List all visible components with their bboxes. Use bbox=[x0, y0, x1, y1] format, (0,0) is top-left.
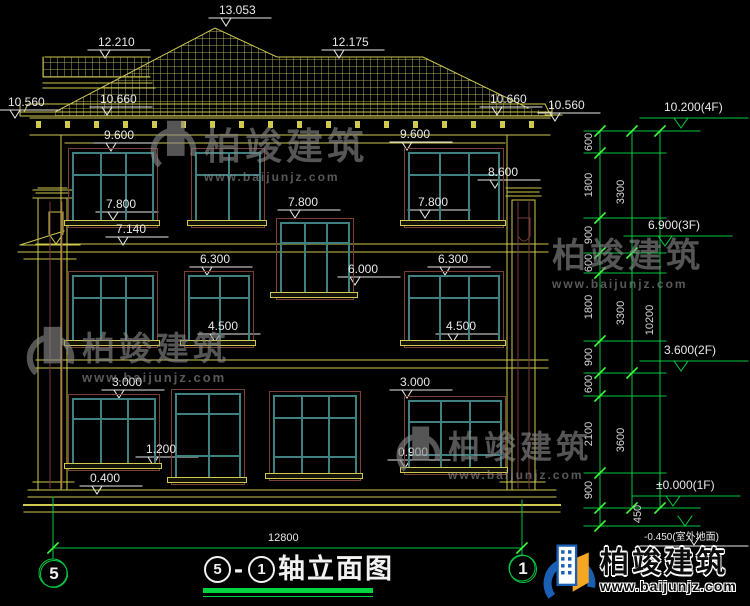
window-sill bbox=[400, 220, 506, 226]
elev-label-ridge: 13.053 bbox=[219, 4, 256, 17]
window bbox=[408, 400, 502, 471]
elev-label: 12.210 bbox=[98, 36, 135, 49]
dim-segment: 1800 bbox=[583, 295, 595, 319]
dim-segment: 2100 bbox=[583, 422, 595, 446]
window-tall bbox=[273, 395, 357, 477]
window-tall bbox=[175, 393, 241, 481]
elev-label: 10.660 bbox=[100, 93, 137, 106]
elev-label: 6.300 bbox=[438, 253, 468, 266]
title-underline-thick bbox=[203, 588, 373, 593]
drawing-title: 5 - 1 轴立面图 bbox=[204, 555, 394, 583]
elev-label: 7.140 bbox=[116, 223, 146, 236]
window-sill bbox=[265, 473, 363, 479]
dim-overall-height: 10200 bbox=[644, 305, 656, 336]
elev-label: 3.000 bbox=[112, 376, 142, 389]
floor-level-4f: 10.200(4F) bbox=[664, 101, 723, 114]
window-sill bbox=[187, 220, 267, 226]
dim-storey: 3300 bbox=[615, 180, 627, 204]
elev-label: 9.600 bbox=[104, 129, 134, 142]
elev-label: 9.600 bbox=[400, 128, 430, 141]
elevation-drawing-canvas: 13.053 12.210 12.175 10.560 10.660 10.66… bbox=[0, 0, 750, 606]
elev-label: 7.800 bbox=[106, 198, 136, 211]
elev-label: 7.800 bbox=[288, 196, 318, 209]
dim-segment: 600 bbox=[583, 254, 595, 272]
window bbox=[72, 398, 156, 467]
elev-label: 6.000 bbox=[348, 263, 378, 276]
title-underline-thin bbox=[203, 596, 373, 597]
dim-below-zero: 450 bbox=[632, 505, 644, 523]
axis-bubble-1: 1 bbox=[509, 555, 537, 583]
dim-segment: 600 bbox=[583, 133, 595, 151]
window bbox=[408, 275, 500, 344]
elev-label: 0.400 bbox=[90, 472, 120, 485]
elev-label: 4.500 bbox=[446, 320, 476, 333]
elev-label: 10.560 bbox=[8, 96, 45, 109]
dim-overall-width: 12800 bbox=[268, 532, 299, 545]
window bbox=[72, 275, 154, 344]
dim-segment: 900 bbox=[583, 481, 595, 499]
window bbox=[188, 275, 250, 344]
elev-label: 12.175 bbox=[332, 36, 369, 49]
title-text: 轴立面图 bbox=[278, 555, 394, 583]
window bbox=[195, 152, 261, 224]
dim-segment: 900 bbox=[583, 348, 595, 366]
company-logo-icon bbox=[540, 541, 596, 601]
window-sill bbox=[180, 340, 256, 346]
floor-level-2f: 3.600(2F) bbox=[664, 344, 716, 357]
elev-label: 8.600 bbox=[488, 166, 518, 179]
title-axis-start: 5 bbox=[204, 556, 231, 583]
window-sill bbox=[64, 463, 162, 469]
dim-storey: 3600 bbox=[615, 428, 627, 452]
window-sill bbox=[400, 340, 506, 346]
title-dash: - bbox=[234, 555, 245, 583]
dim-segment: 900 bbox=[583, 226, 595, 244]
dim-storey: 3300 bbox=[615, 301, 627, 325]
floor-level-1f: ±0.000(1F) bbox=[656, 479, 715, 492]
window-stairwell bbox=[280, 222, 350, 296]
elev-label: 6.300 bbox=[200, 253, 230, 266]
elev-label: 3.000 bbox=[400, 376, 430, 389]
elev-label: 1.200 bbox=[146, 443, 176, 456]
dim-segment: 1800 bbox=[583, 173, 595, 197]
company-logo-brand: 柏竣建筑 bbox=[600, 548, 737, 578]
floor-level-3f: 6.900(3F) bbox=[648, 219, 700, 232]
window bbox=[408, 152, 500, 224]
window-sill bbox=[270, 292, 358, 298]
elev-label: 0.900 bbox=[398, 446, 428, 459]
company-logo-url: www.baijunjz.com bbox=[600, 578, 737, 594]
elev-label: 7.800 bbox=[418, 196, 448, 209]
window-sill bbox=[64, 340, 160, 346]
window bbox=[72, 152, 154, 224]
dim-segment: 600 bbox=[583, 375, 595, 393]
window-sill bbox=[400, 467, 508, 473]
elev-label: 10.560 bbox=[548, 99, 585, 112]
company-logo: 柏竣建筑 www.baijunjz.com bbox=[540, 541, 737, 601]
elev-label: 10.660 bbox=[490, 93, 527, 106]
elev-label: 4.500 bbox=[208, 320, 238, 333]
axis-bubble-5: 5 bbox=[40, 560, 68, 588]
window-sill bbox=[167, 477, 247, 483]
eave-dentils bbox=[36, 121, 546, 128]
title-axis-end: 1 bbox=[248, 556, 275, 583]
